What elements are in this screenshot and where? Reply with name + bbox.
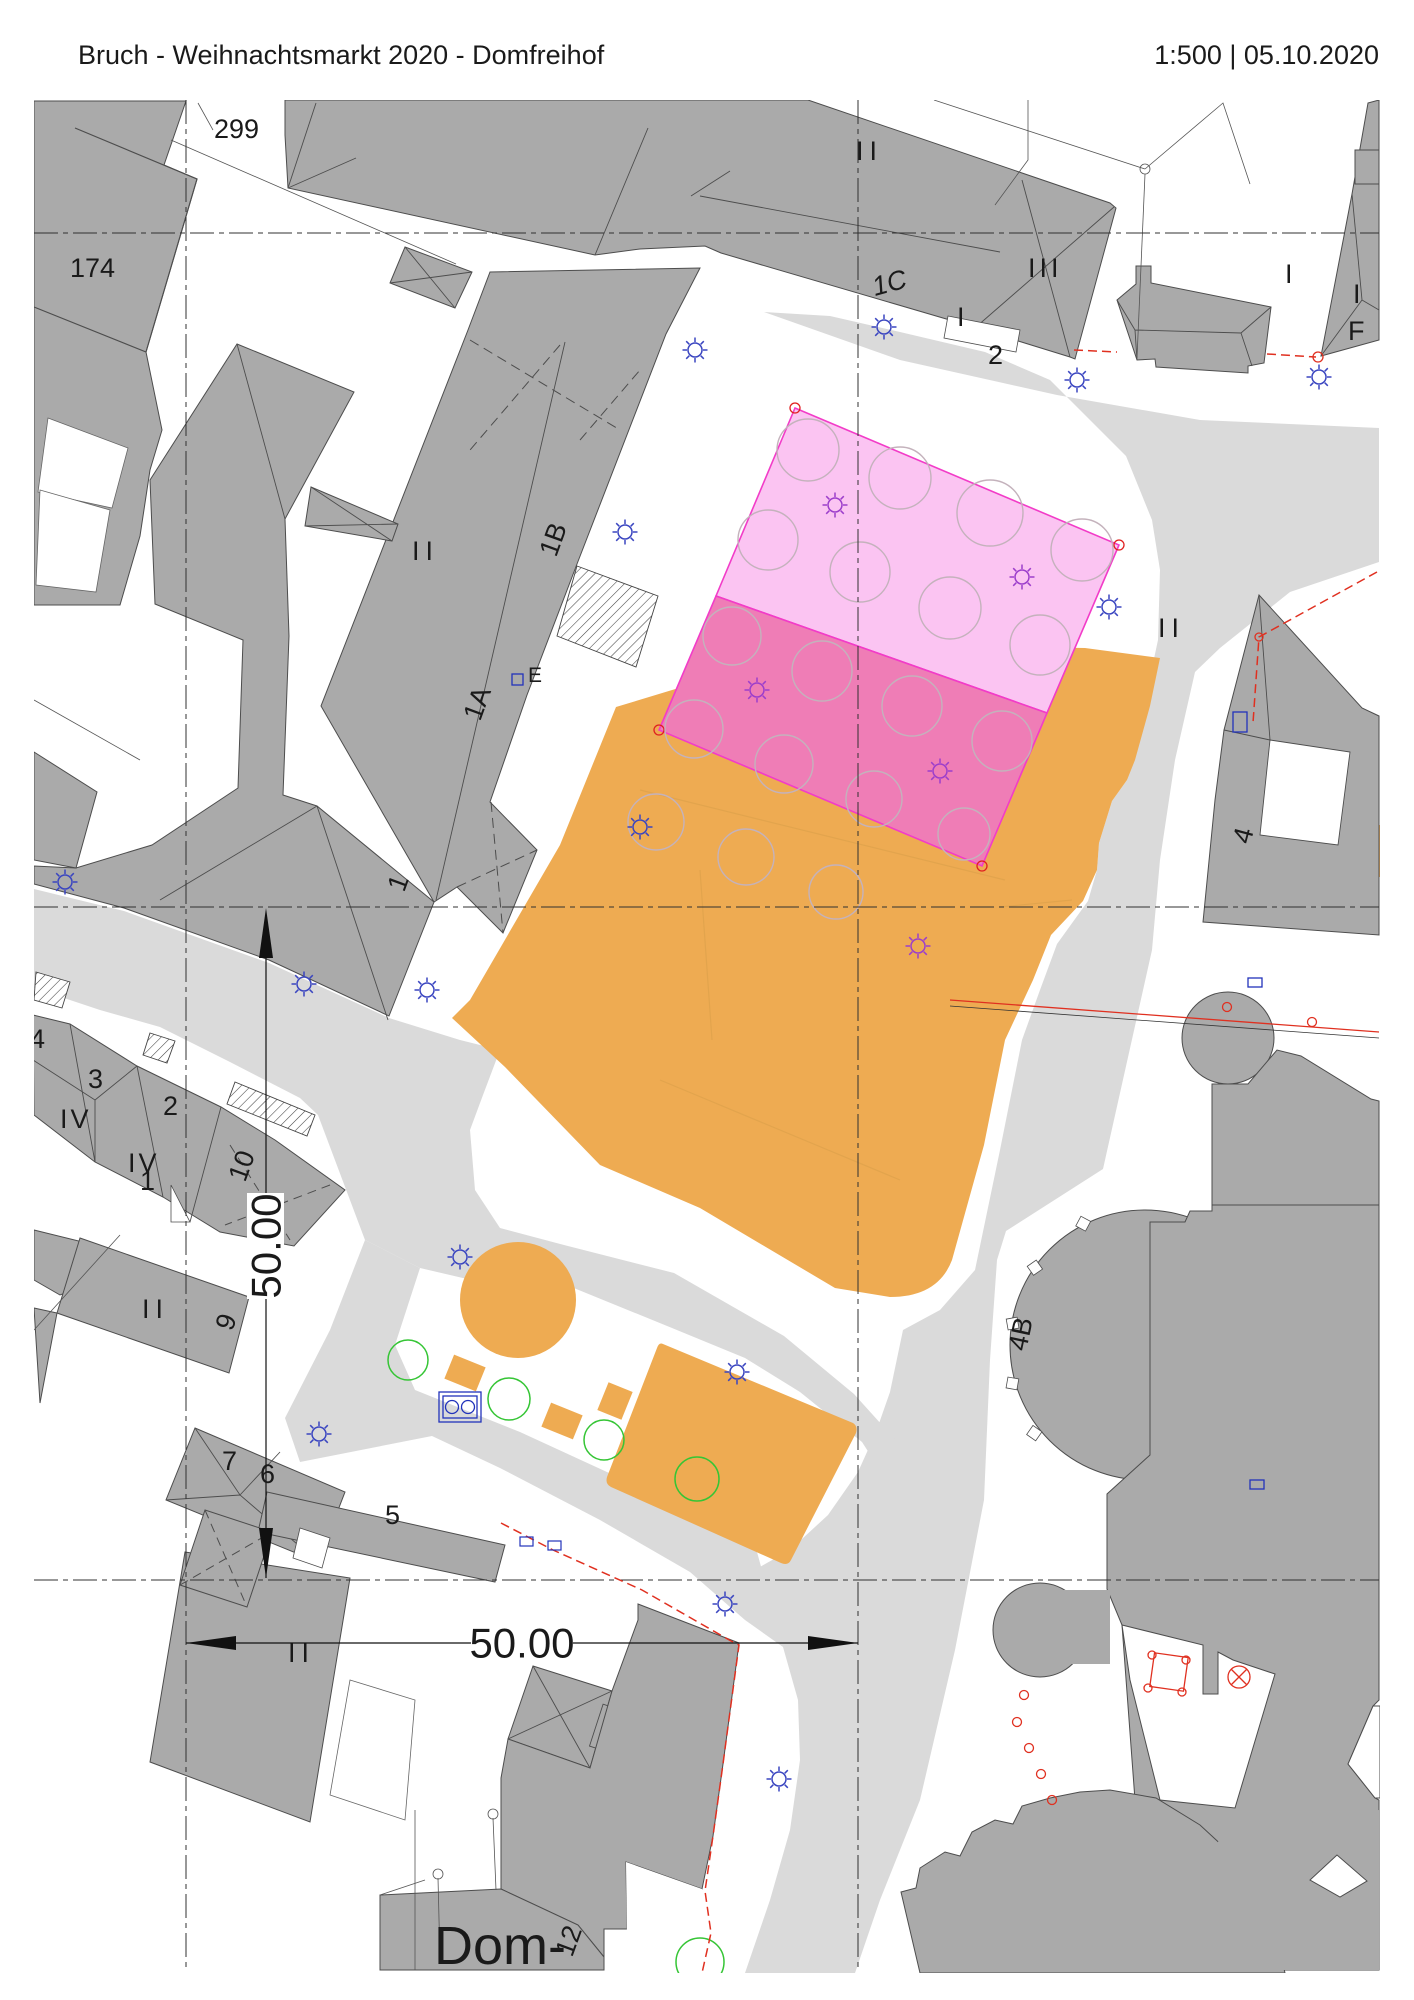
svg-text:174: 174 <box>70 253 115 283</box>
svg-text:7: 7 <box>222 1446 237 1476</box>
svg-text:F: F <box>1348 316 1365 346</box>
svg-text:5: 5 <box>385 1500 400 1530</box>
svg-text:E: E <box>528 664 542 687</box>
svg-text:2: 2 <box>163 1091 178 1121</box>
svg-text:I: I <box>957 302 965 332</box>
svg-text:I: I <box>1285 259 1293 289</box>
svg-text:II: II <box>412 536 439 566</box>
svg-text:Bruch - Weihnachtsmarkt 2020 -: Bruch - Weihnachtsmarkt 2020 - Domfreiho… <box>78 40 605 70</box>
svg-text:Dom-: Dom- <box>434 1916 566 1976</box>
svg-text:I: I <box>1353 279 1361 309</box>
svg-text:II: II <box>1158 613 1185 643</box>
svg-text:IV: IV <box>60 1104 92 1134</box>
svg-text:II: II <box>288 1638 315 1668</box>
svg-text:2: 2 <box>988 340 1003 370</box>
svg-text:3: 3 <box>88 1064 103 1094</box>
svg-text:1: 1 <box>140 1166 155 1196</box>
svg-text:50.00: 50.00 <box>469 1620 574 1667</box>
svg-text:1:500 | 05.10.2020: 1:500 | 05.10.2020 <box>1154 40 1379 70</box>
svg-text:II: II <box>142 1294 169 1324</box>
svg-text:III: III <box>1028 253 1063 283</box>
svg-text:50.00: 50.00 <box>243 1193 290 1298</box>
svg-text:6: 6 <box>260 1459 275 1489</box>
svg-text:299: 299 <box>214 114 259 144</box>
svg-text:II: II <box>856 136 883 166</box>
